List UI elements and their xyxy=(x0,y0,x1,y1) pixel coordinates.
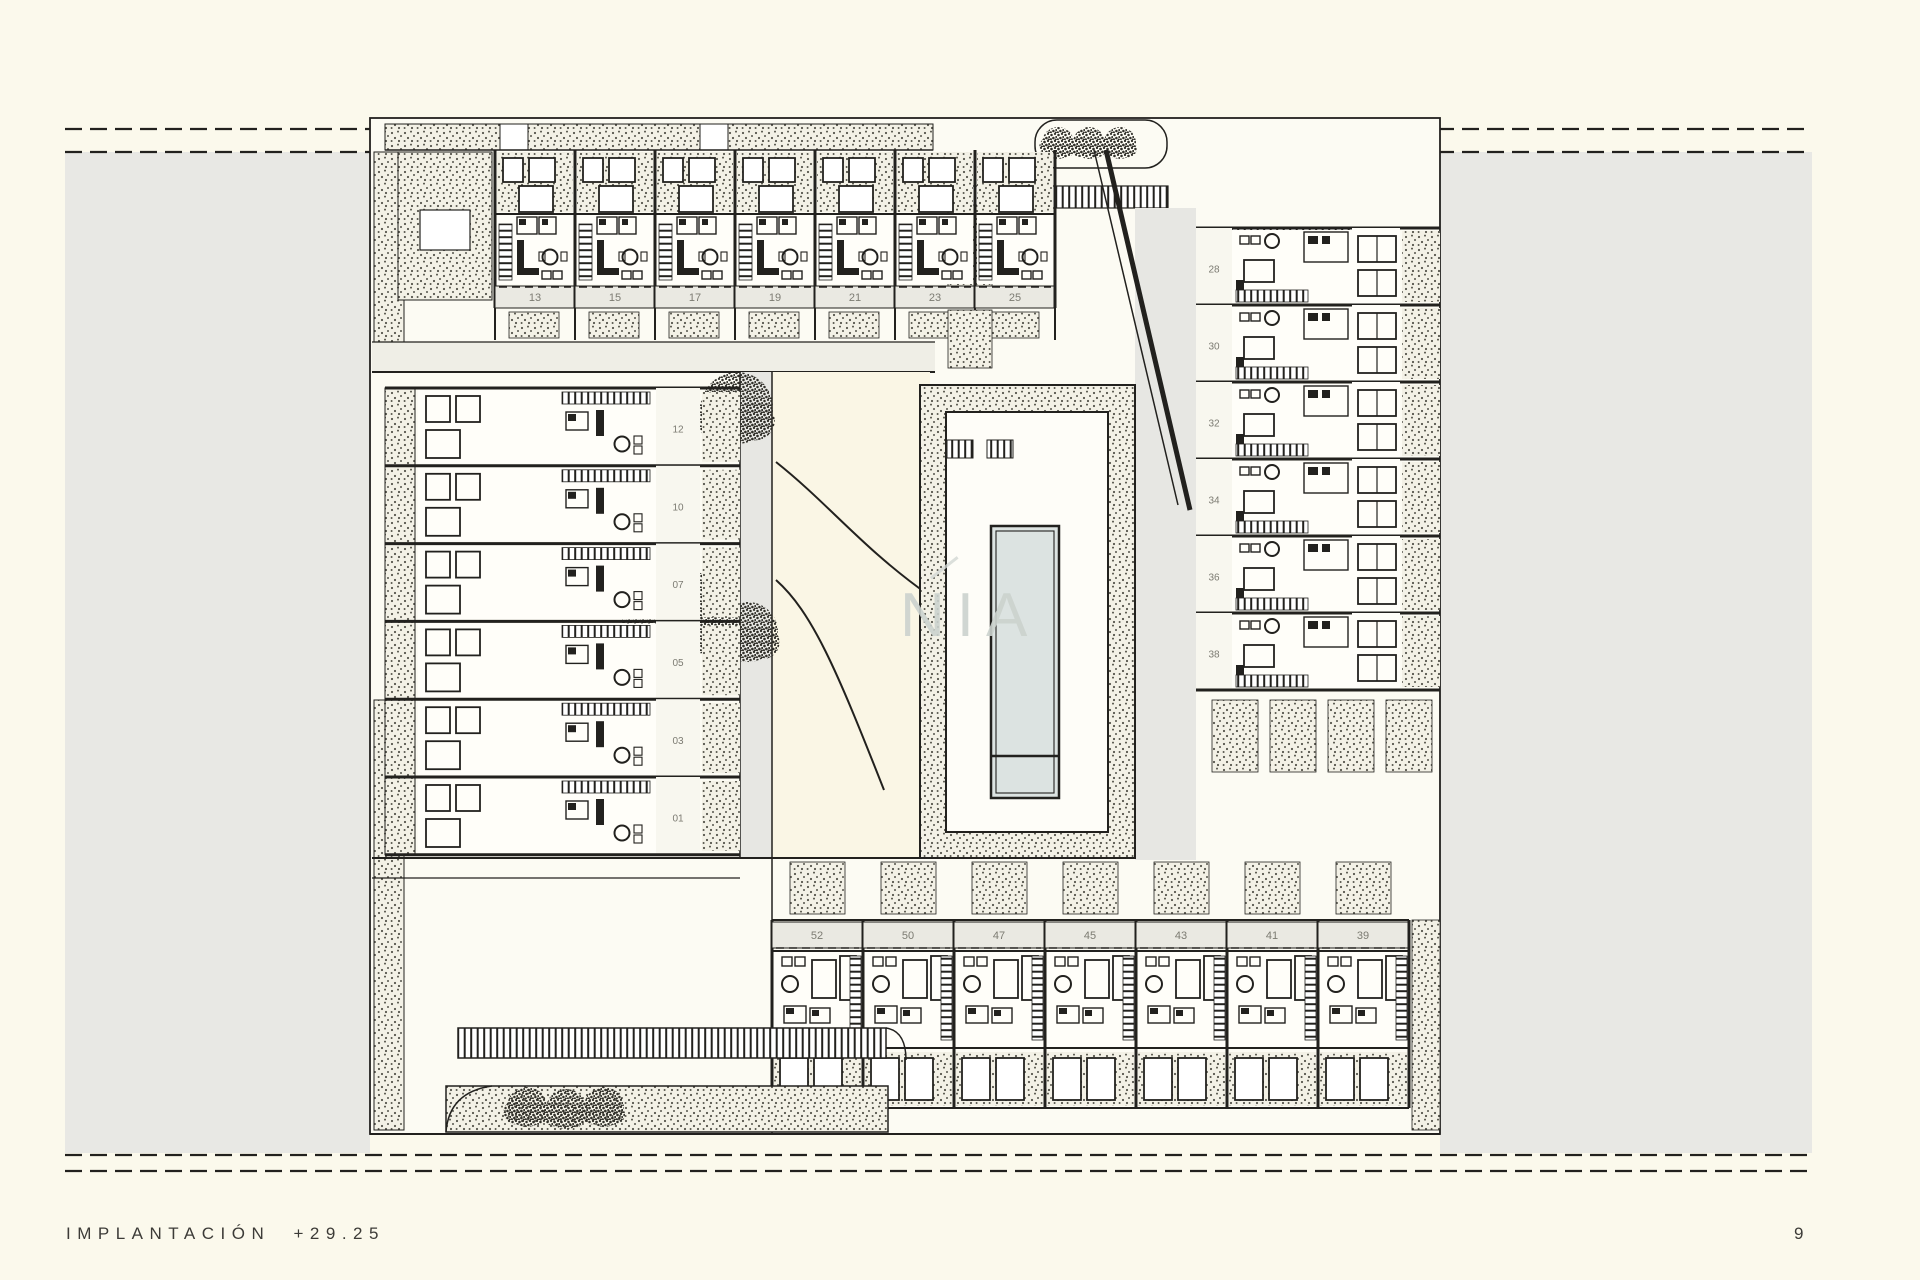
unit-number: 43 xyxy=(1175,930,1187,942)
unit-number: 28 xyxy=(1208,265,1220,276)
unit-number: 47 xyxy=(993,930,1005,942)
unit-number: 12 xyxy=(672,425,684,436)
unit-number: 21 xyxy=(849,292,861,304)
unit-number: 32 xyxy=(1208,419,1220,430)
unit-number: 52 xyxy=(811,930,823,942)
unit-number: 34 xyxy=(1208,496,1220,507)
unit-number: 30 xyxy=(1208,342,1220,353)
unit-number: 17 xyxy=(689,292,701,304)
unit-number: 19 xyxy=(769,292,781,304)
unit-number: 50 xyxy=(902,930,914,942)
site-plan-drawing: 1315171921232528303234363812100705030152… xyxy=(0,0,1920,1280)
unit-number: 39 xyxy=(1357,930,1369,942)
unit-number: 01 xyxy=(672,814,684,825)
drawing-sheet: MIRASAL II xyxy=(0,0,1920,1280)
unit-number: 36 xyxy=(1208,573,1220,584)
unit-number: 07 xyxy=(672,580,684,591)
unit-number: 25 xyxy=(1009,292,1021,304)
unit-number: 38 xyxy=(1208,650,1220,661)
unit-number: 45 xyxy=(1084,930,1096,942)
unit-number: 41 xyxy=(1266,930,1278,942)
sheet-name: IMPLANTACIÓN +29.25 xyxy=(66,1224,385,1244)
unit-number: 13 xyxy=(529,292,541,304)
unit-number: 23 xyxy=(929,292,941,304)
unit-number: 10 xyxy=(672,502,684,513)
unit-number: 03 xyxy=(672,736,684,747)
page-number: 9 xyxy=(1794,1224,1803,1244)
unit-number: 15 xyxy=(609,292,621,304)
unit-number: 05 xyxy=(672,658,684,669)
